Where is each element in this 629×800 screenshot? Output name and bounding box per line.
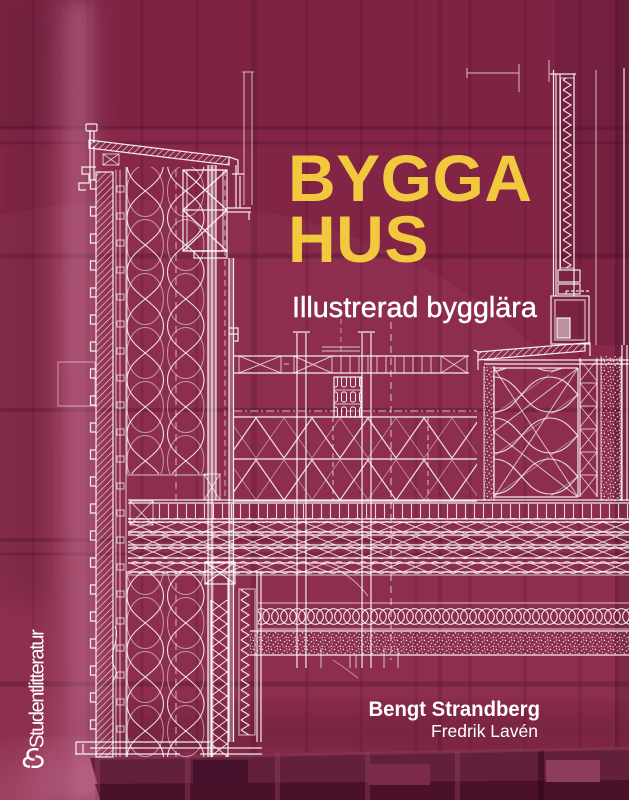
svg-text:Studentlitteratur: Studentlitteratur <box>27 629 49 748</box>
svg-text:Fredrik Lavén: Fredrik Lavén <box>431 721 538 741</box>
svg-text:Illustrerad bygglära: Illustrerad bygglära <box>292 292 538 324</box>
svg-text:HUS: HUS <box>288 202 429 276</box>
svg-text:Bengt Strandberg: Bengt Strandberg <box>368 697 540 721</box>
